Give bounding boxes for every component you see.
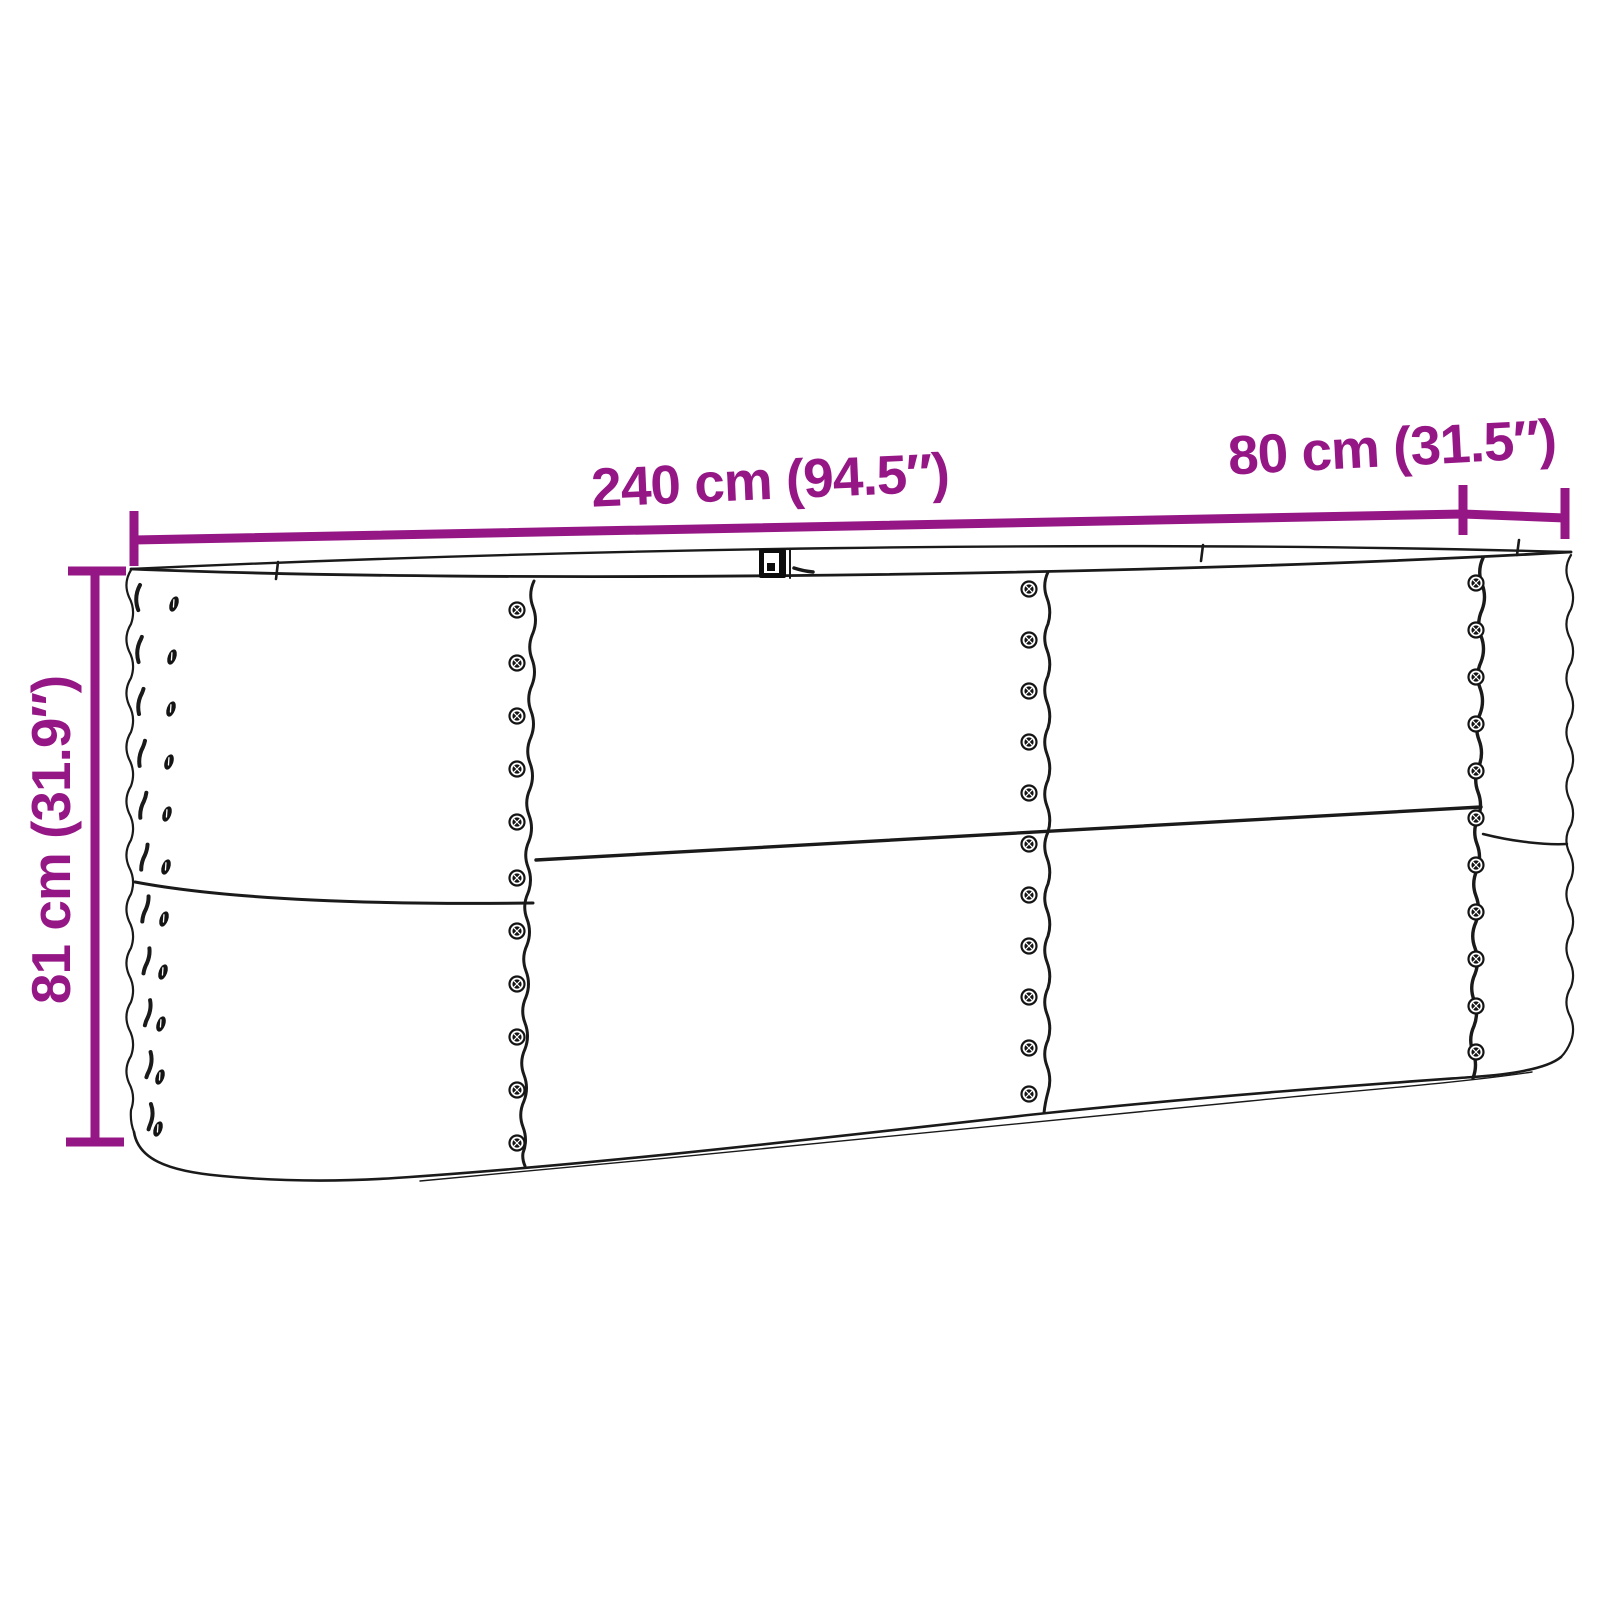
seam-2-rivets <box>1022 582 1037 1102</box>
bottom-edge <box>134 1057 1561 1180</box>
left-end-seam <box>136 585 152 1147</box>
length-dimension-line <box>134 514 1565 540</box>
left-end-rivets <box>151 595 180 1138</box>
front-horizontal-seam <box>536 807 1481 860</box>
left-corrugated-edge <box>126 570 134 1132</box>
length-label: 240 cm (94.5″) <box>590 441 950 519</box>
panel-seam-2 <box>1044 572 1050 1113</box>
dimension-diagram-svg: 240 cm (94.5″) 80 cm (31.5″) 81 cm (31.9… <box>0 0 1600 1600</box>
dimension-annotations: 240 cm (94.5″) 80 cm (31.5″) 81 cm (31.9… <box>20 407 1565 1142</box>
product-dimension-diagram: 240 cm (94.5″) 80 cm (31.5″) 81 cm (31.9… <box>0 0 1600 1600</box>
height-label: 81 cm (31.9″) <box>20 676 82 1004</box>
left-end-horizontal-seam <box>135 882 533 903</box>
bottom-edge-shadow-line <box>420 1072 1532 1181</box>
depth-label: 80 cm (31.5″) <box>1226 407 1557 486</box>
right-corrugated-edge <box>1561 555 1573 1057</box>
clip-connector <box>759 549 813 578</box>
raised-bed-drawing <box>126 540 1573 1181</box>
rim-front-edge <box>131 552 1571 577</box>
rim-top-edge <box>131 546 1571 569</box>
right-end-horizontal-seam <box>1483 834 1567 844</box>
